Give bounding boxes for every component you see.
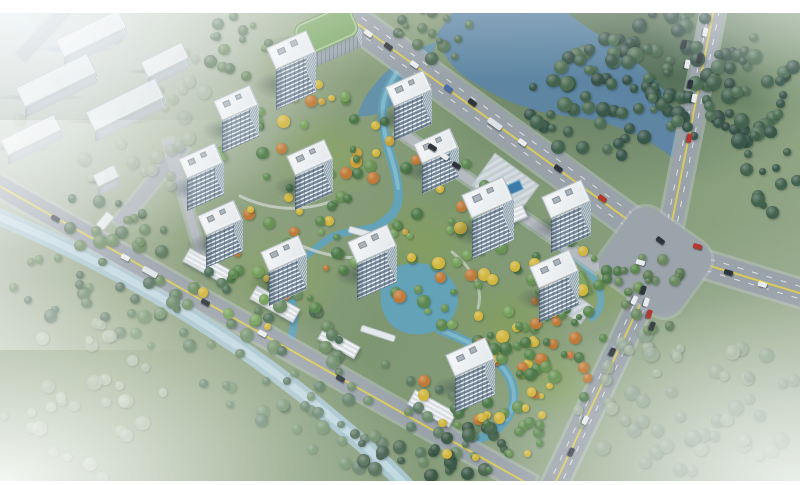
car bbox=[687, 79, 693, 89]
tree bbox=[404, 408, 412, 416]
tree bbox=[636, 415, 649, 428]
tree bbox=[563, 126, 573, 136]
rooftop-unit bbox=[565, 188, 573, 196]
tree bbox=[343, 194, 352, 203]
tree bbox=[422, 411, 432, 421]
tree bbox=[300, 120, 308, 128]
tree bbox=[711, 60, 724, 73]
tree bbox=[85, 336, 93, 344]
tree bbox=[32, 421, 46, 435]
tree bbox=[76, 271, 84, 279]
tree bbox=[614, 277, 623, 286]
tree bbox=[706, 76, 720, 90]
tree bbox=[363, 396, 372, 405]
rooftop-unit bbox=[200, 151, 208, 158]
tree bbox=[591, 73, 604, 86]
tree bbox=[690, 41, 703, 54]
rooftop-unit bbox=[283, 244, 291, 251]
tree bbox=[474, 311, 484, 321]
tree bbox=[786, 60, 800, 74]
tree bbox=[599, 334, 607, 342]
tree bbox=[411, 208, 423, 220]
tree bbox=[98, 258, 106, 266]
car bbox=[684, 59, 690, 69]
tree bbox=[605, 402, 617, 414]
tree bbox=[198, 287, 208, 297]
tree bbox=[775, 76, 785, 86]
tree bbox=[546, 383, 552, 389]
tree bbox=[705, 110, 716, 121]
tree bbox=[69, 401, 80, 412]
tree bbox=[350, 146, 356, 152]
rooftop-unit bbox=[206, 215, 215, 224]
tree bbox=[432, 257, 444, 269]
tree bbox=[659, 439, 673, 453]
tree bbox=[625, 38, 635, 48]
tree bbox=[182, 299, 193, 310]
tree bbox=[339, 457, 351, 469]
tree bbox=[376, 446, 389, 459]
tree bbox=[204, 55, 217, 68]
rooftop-unit bbox=[469, 346, 477, 354]
tree bbox=[645, 278, 651, 284]
tree bbox=[529, 83, 537, 91]
tree bbox=[229, 12, 238, 21]
tree bbox=[524, 368, 537, 381]
tree bbox=[57, 397, 67, 407]
tree bbox=[13, 114, 25, 126]
tree bbox=[436, 38, 442, 44]
tree bbox=[436, 319, 448, 331]
tree bbox=[487, 332, 494, 339]
tree bbox=[438, 419, 447, 428]
tree bbox=[582, 101, 595, 114]
tree bbox=[506, 450, 514, 458]
tree bbox=[447, 320, 456, 329]
tree bbox=[595, 441, 609, 455]
tree bbox=[96, 320, 106, 330]
tree bbox=[223, 308, 233, 318]
tree bbox=[621, 300, 630, 309]
tree bbox=[602, 274, 611, 283]
tree bbox=[761, 75, 774, 88]
tree bbox=[315, 216, 325, 226]
tree bbox=[197, 85, 211, 99]
tree bbox=[276, 399, 289, 412]
tree bbox=[368, 462, 382, 476]
tree bbox=[474, 281, 482, 289]
aerial-rendering bbox=[0, 0, 800, 485]
tree bbox=[543, 338, 550, 345]
tree bbox=[510, 261, 520, 271]
tree bbox=[579, 392, 589, 402]
tree bbox=[367, 172, 379, 184]
tree bbox=[213, 32, 221, 40]
tree bbox=[535, 420, 545, 430]
tree bbox=[406, 233, 412, 239]
tree bbox=[709, 431, 719, 441]
tree bbox=[168, 94, 178, 104]
tree bbox=[719, 371, 729, 381]
tree bbox=[226, 319, 237, 330]
tree bbox=[744, 372, 753, 381]
tree bbox=[527, 387, 536, 396]
car bbox=[697, 53, 703, 63]
letterbox-bar-bottom bbox=[0, 481, 800, 485]
tree bbox=[616, 149, 627, 160]
tree bbox=[734, 113, 749, 128]
tree bbox=[605, 54, 617, 66]
tree bbox=[143, 277, 155, 289]
tree bbox=[779, 91, 787, 99]
tree bbox=[159, 388, 167, 396]
tree bbox=[48, 447, 59, 458]
tree bbox=[764, 126, 776, 138]
tree bbox=[27, 408, 36, 417]
tree bbox=[672, 351, 683, 362]
tree bbox=[441, 432, 453, 444]
tree bbox=[515, 322, 523, 330]
tree bbox=[648, 93, 658, 103]
rooftop-unit bbox=[435, 136, 443, 143]
tree bbox=[772, 164, 780, 172]
rooftop-unit bbox=[219, 208, 227, 215]
tree bbox=[616, 107, 628, 119]
tree bbox=[487, 274, 498, 285]
tree bbox=[191, 55, 199, 63]
tree bbox=[340, 91, 351, 102]
tree bbox=[41, 380, 55, 394]
tree bbox=[127, 309, 136, 318]
tree bbox=[250, 22, 256, 28]
tree bbox=[666, 387, 677, 398]
tree bbox=[312, 407, 323, 418]
tree bbox=[126, 156, 139, 169]
tree bbox=[318, 229, 324, 235]
tree bbox=[776, 99, 785, 108]
rooftop-unit bbox=[371, 233, 379, 241]
tree bbox=[137, 310, 150, 323]
car bbox=[681, 39, 687, 49]
tree bbox=[177, 111, 190, 124]
rooftop-unit bbox=[276, 46, 286, 55]
tree bbox=[425, 52, 438, 65]
tree bbox=[584, 65, 594, 75]
tree bbox=[561, 351, 568, 358]
tree bbox=[333, 234, 339, 240]
tree bbox=[578, 246, 588, 256]
tree bbox=[594, 117, 606, 129]
tree bbox=[418, 457, 428, 467]
tree bbox=[462, 250, 472, 260]
tree bbox=[451, 53, 458, 60]
rooftop-unit bbox=[551, 195, 561, 204]
tree bbox=[115, 381, 124, 390]
tree bbox=[393, 222, 401, 230]
tree bbox=[651, 424, 663, 436]
tree bbox=[218, 44, 229, 55]
tree bbox=[665, 321, 675, 331]
tree bbox=[147, 342, 154, 349]
car bbox=[691, 93, 697, 103]
tree bbox=[326, 355, 340, 369]
tree bbox=[256, 147, 268, 159]
tree bbox=[93, 235, 107, 249]
rooftop-unit bbox=[408, 79, 416, 86]
tree bbox=[546, 110, 555, 119]
tree bbox=[540, 361, 551, 372]
tree bbox=[337, 436, 347, 446]
tree bbox=[608, 34, 620, 46]
tree bbox=[222, 285, 231, 294]
tree bbox=[105, 330, 117, 342]
tree bbox=[63, 453, 71, 461]
tree bbox=[720, 414, 732, 426]
tree bbox=[764, 444, 777, 457]
tree bbox=[754, 451, 764, 461]
tree bbox=[54, 254, 62, 262]
tree bbox=[465, 20, 473, 28]
tree bbox=[307, 444, 317, 454]
tree bbox=[81, 298, 92, 309]
rooftop-unit bbox=[357, 240, 367, 249]
tree bbox=[747, 49, 762, 64]
tree bbox=[699, 13, 710, 24]
tree bbox=[751, 193, 765, 207]
tree bbox=[686, 465, 697, 476]
tree bbox=[671, 115, 683, 127]
tree bbox=[44, 309, 57, 322]
tree bbox=[414, 285, 423, 294]
tree bbox=[120, 429, 133, 442]
tree bbox=[620, 415, 630, 425]
tree bbox=[631, 309, 642, 320]
tree bbox=[663, 93, 672, 102]
rooftop-unit bbox=[395, 85, 405, 94]
tree bbox=[24, 296, 32, 304]
tree bbox=[240, 328, 253, 341]
tree bbox=[93, 195, 105, 207]
tree bbox=[651, 82, 659, 90]
tree bbox=[744, 394, 754, 404]
tree bbox=[101, 397, 111, 407]
tree bbox=[669, 275, 679, 285]
rooftop-unit bbox=[235, 93, 243, 100]
tree bbox=[415, 447, 426, 458]
tree bbox=[135, 416, 150, 431]
rooftop-unit bbox=[270, 250, 280, 259]
tree bbox=[372, 149, 380, 157]
tree bbox=[580, 91, 591, 102]
tree bbox=[428, 29, 436, 37]
rooftop-unit bbox=[296, 154, 306, 163]
tree bbox=[569, 332, 580, 343]
tree bbox=[642, 44, 652, 54]
tree bbox=[385, 136, 394, 145]
tree bbox=[316, 420, 329, 433]
tree bbox=[514, 427, 523, 436]
tree bbox=[766, 206, 779, 219]
tree bbox=[450, 289, 456, 295]
tree bbox=[759, 348, 773, 362]
tree bbox=[155, 245, 168, 258]
tree bbox=[452, 257, 462, 267]
tree bbox=[381, 360, 389, 368]
tree bbox=[624, 123, 635, 134]
tree bbox=[583, 373, 592, 382]
rooftop-unit bbox=[222, 100, 231, 109]
tree bbox=[337, 421, 345, 429]
letterbox-bar-top bbox=[0, 0, 800, 13]
tree bbox=[596, 102, 610, 116]
tree bbox=[340, 167, 352, 179]
tree bbox=[538, 411, 546, 419]
tree bbox=[625, 288, 631, 294]
tree bbox=[319, 341, 332, 354]
tree bbox=[639, 457, 650, 468]
rooftop-unit bbox=[486, 186, 495, 194]
tree bbox=[235, 349, 244, 358]
tree bbox=[483, 420, 490, 427]
tree bbox=[591, 256, 597, 262]
tree bbox=[728, 400, 743, 415]
rooftop-unit bbox=[455, 353, 465, 362]
tree bbox=[347, 382, 356, 391]
tree bbox=[704, 101, 714, 111]
tree bbox=[77, 152, 91, 166]
tree bbox=[178, 86, 187, 95]
rooftop-unit bbox=[309, 148, 317, 155]
tree bbox=[442, 449, 452, 459]
tree bbox=[775, 178, 787, 190]
tree bbox=[166, 296, 180, 310]
tree bbox=[571, 319, 578, 326]
tree bbox=[724, 62, 736, 74]
rooftop-unit bbox=[539, 265, 549, 274]
tree bbox=[417, 295, 429, 307]
tree bbox=[406, 422, 416, 432]
tree bbox=[443, 15, 450, 22]
tree bbox=[791, 175, 800, 187]
tree bbox=[75, 280, 84, 289]
tree bbox=[496, 330, 509, 343]
tree bbox=[739, 57, 747, 65]
tree bbox=[657, 254, 668, 265]
tree bbox=[276, 143, 287, 154]
tree bbox=[324, 216, 334, 226]
tree bbox=[536, 439, 543, 446]
tree bbox=[239, 36, 246, 43]
tree bbox=[554, 60, 568, 74]
tree bbox=[349, 114, 359, 124]
tree bbox=[277, 346, 287, 356]
tree bbox=[262, 377, 270, 385]
tree bbox=[250, 314, 260, 324]
tree bbox=[675, 411, 686, 422]
tree bbox=[397, 457, 405, 465]
tree bbox=[331, 247, 343, 259]
rooftop-unit bbox=[472, 194, 483, 204]
tree bbox=[546, 74, 560, 88]
tree bbox=[290, 370, 297, 377]
tree bbox=[406, 376, 415, 385]
tree bbox=[46, 402, 56, 412]
rooftop-unit bbox=[187, 158, 196, 167]
tree bbox=[624, 345, 634, 355]
tree bbox=[637, 130, 651, 144]
tree bbox=[368, 430, 380, 442]
tree bbox=[671, 24, 684, 37]
tree bbox=[435, 272, 446, 283]
tree bbox=[454, 422, 461, 429]
rooftop-unit bbox=[553, 258, 561, 266]
tree bbox=[576, 141, 589, 154]
tree bbox=[652, 369, 660, 377]
car bbox=[686, 133, 692, 143]
tree bbox=[430, 444, 440, 454]
tree bbox=[462, 428, 475, 441]
tree bbox=[393, 440, 407, 454]
tree bbox=[263, 313, 274, 324]
tree bbox=[530, 115, 544, 129]
tree bbox=[130, 328, 140, 338]
tree bbox=[573, 405, 583, 415]
tree bbox=[499, 342, 512, 355]
car bbox=[702, 27, 708, 37]
tree bbox=[630, 84, 639, 93]
tree bbox=[749, 33, 758, 42]
tree bbox=[522, 404, 529, 411]
tree bbox=[307, 392, 315, 400]
tree bbox=[226, 401, 233, 408]
tree bbox=[0, 412, 8, 420]
tree bbox=[35, 255, 44, 264]
tree bbox=[277, 115, 290, 128]
tree bbox=[350, 429, 360, 439]
tree bbox=[731, 133, 747, 149]
tree bbox=[643, 347, 658, 362]
tree bbox=[9, 283, 18, 292]
tree bbox=[359, 455, 370, 466]
tree bbox=[632, 18, 647, 33]
tree bbox=[663, 69, 671, 77]
tree bbox=[778, 379, 786, 387]
tree bbox=[606, 78, 618, 90]
rooftop-unit bbox=[290, 39, 298, 47]
tree bbox=[454, 35, 462, 43]
